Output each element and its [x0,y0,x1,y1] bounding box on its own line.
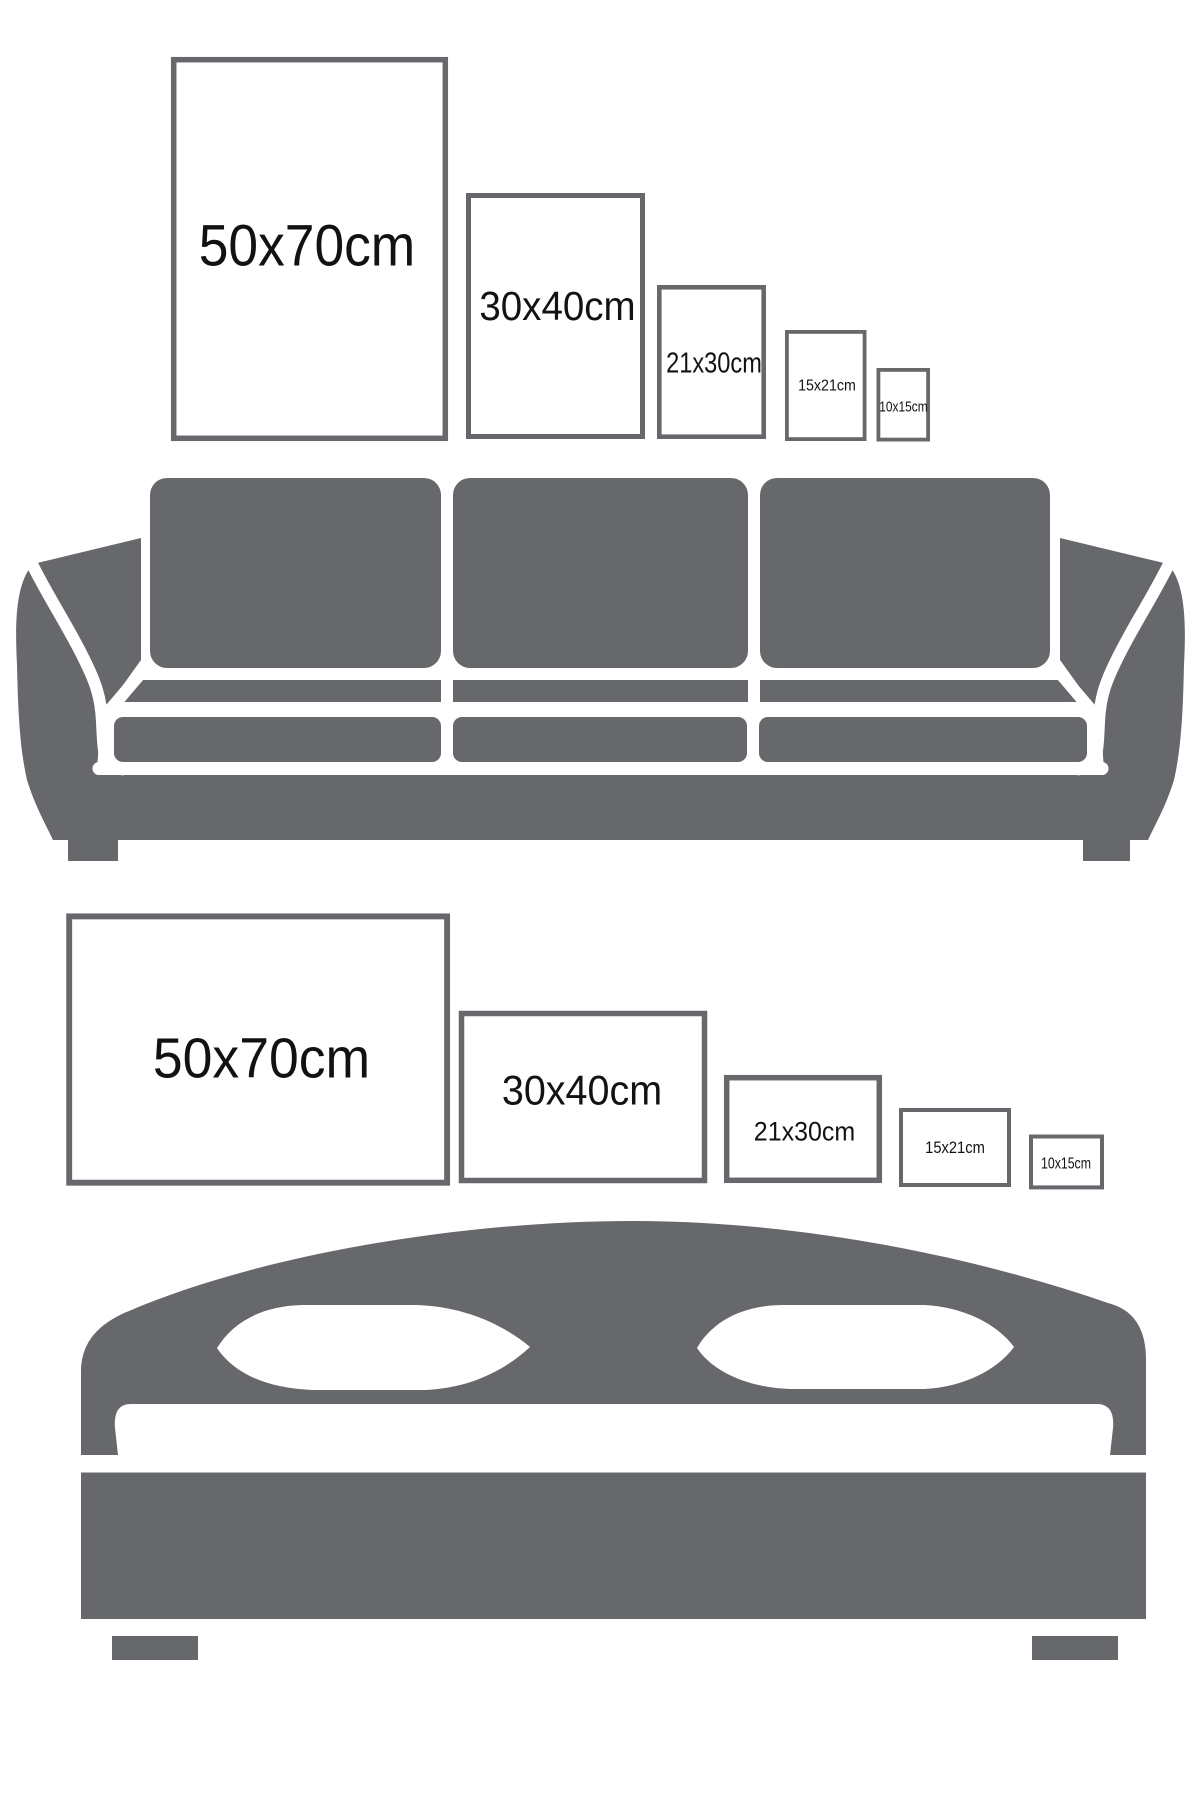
svg-text:10x15cm: 10x15cm [1041,1155,1091,1172]
svg-text:21x30cm: 21x30cm [754,1117,855,1147]
svg-text:15x21cm: 15x21cm [798,377,856,394]
svg-text:30x40cm: 30x40cm [502,1067,662,1114]
svg-text:15x21cm: 15x21cm [925,1138,985,1157]
svg-text:30x40cm: 30x40cm [479,283,635,329]
svg-text:50x70cm: 50x70cm [199,214,416,279]
svg-text:21x30cm: 21x30cm [666,348,762,380]
svg-text:10x15cm: 10x15cm [879,400,927,416]
svg-text:50x70cm: 50x70cm [153,1027,370,1091]
